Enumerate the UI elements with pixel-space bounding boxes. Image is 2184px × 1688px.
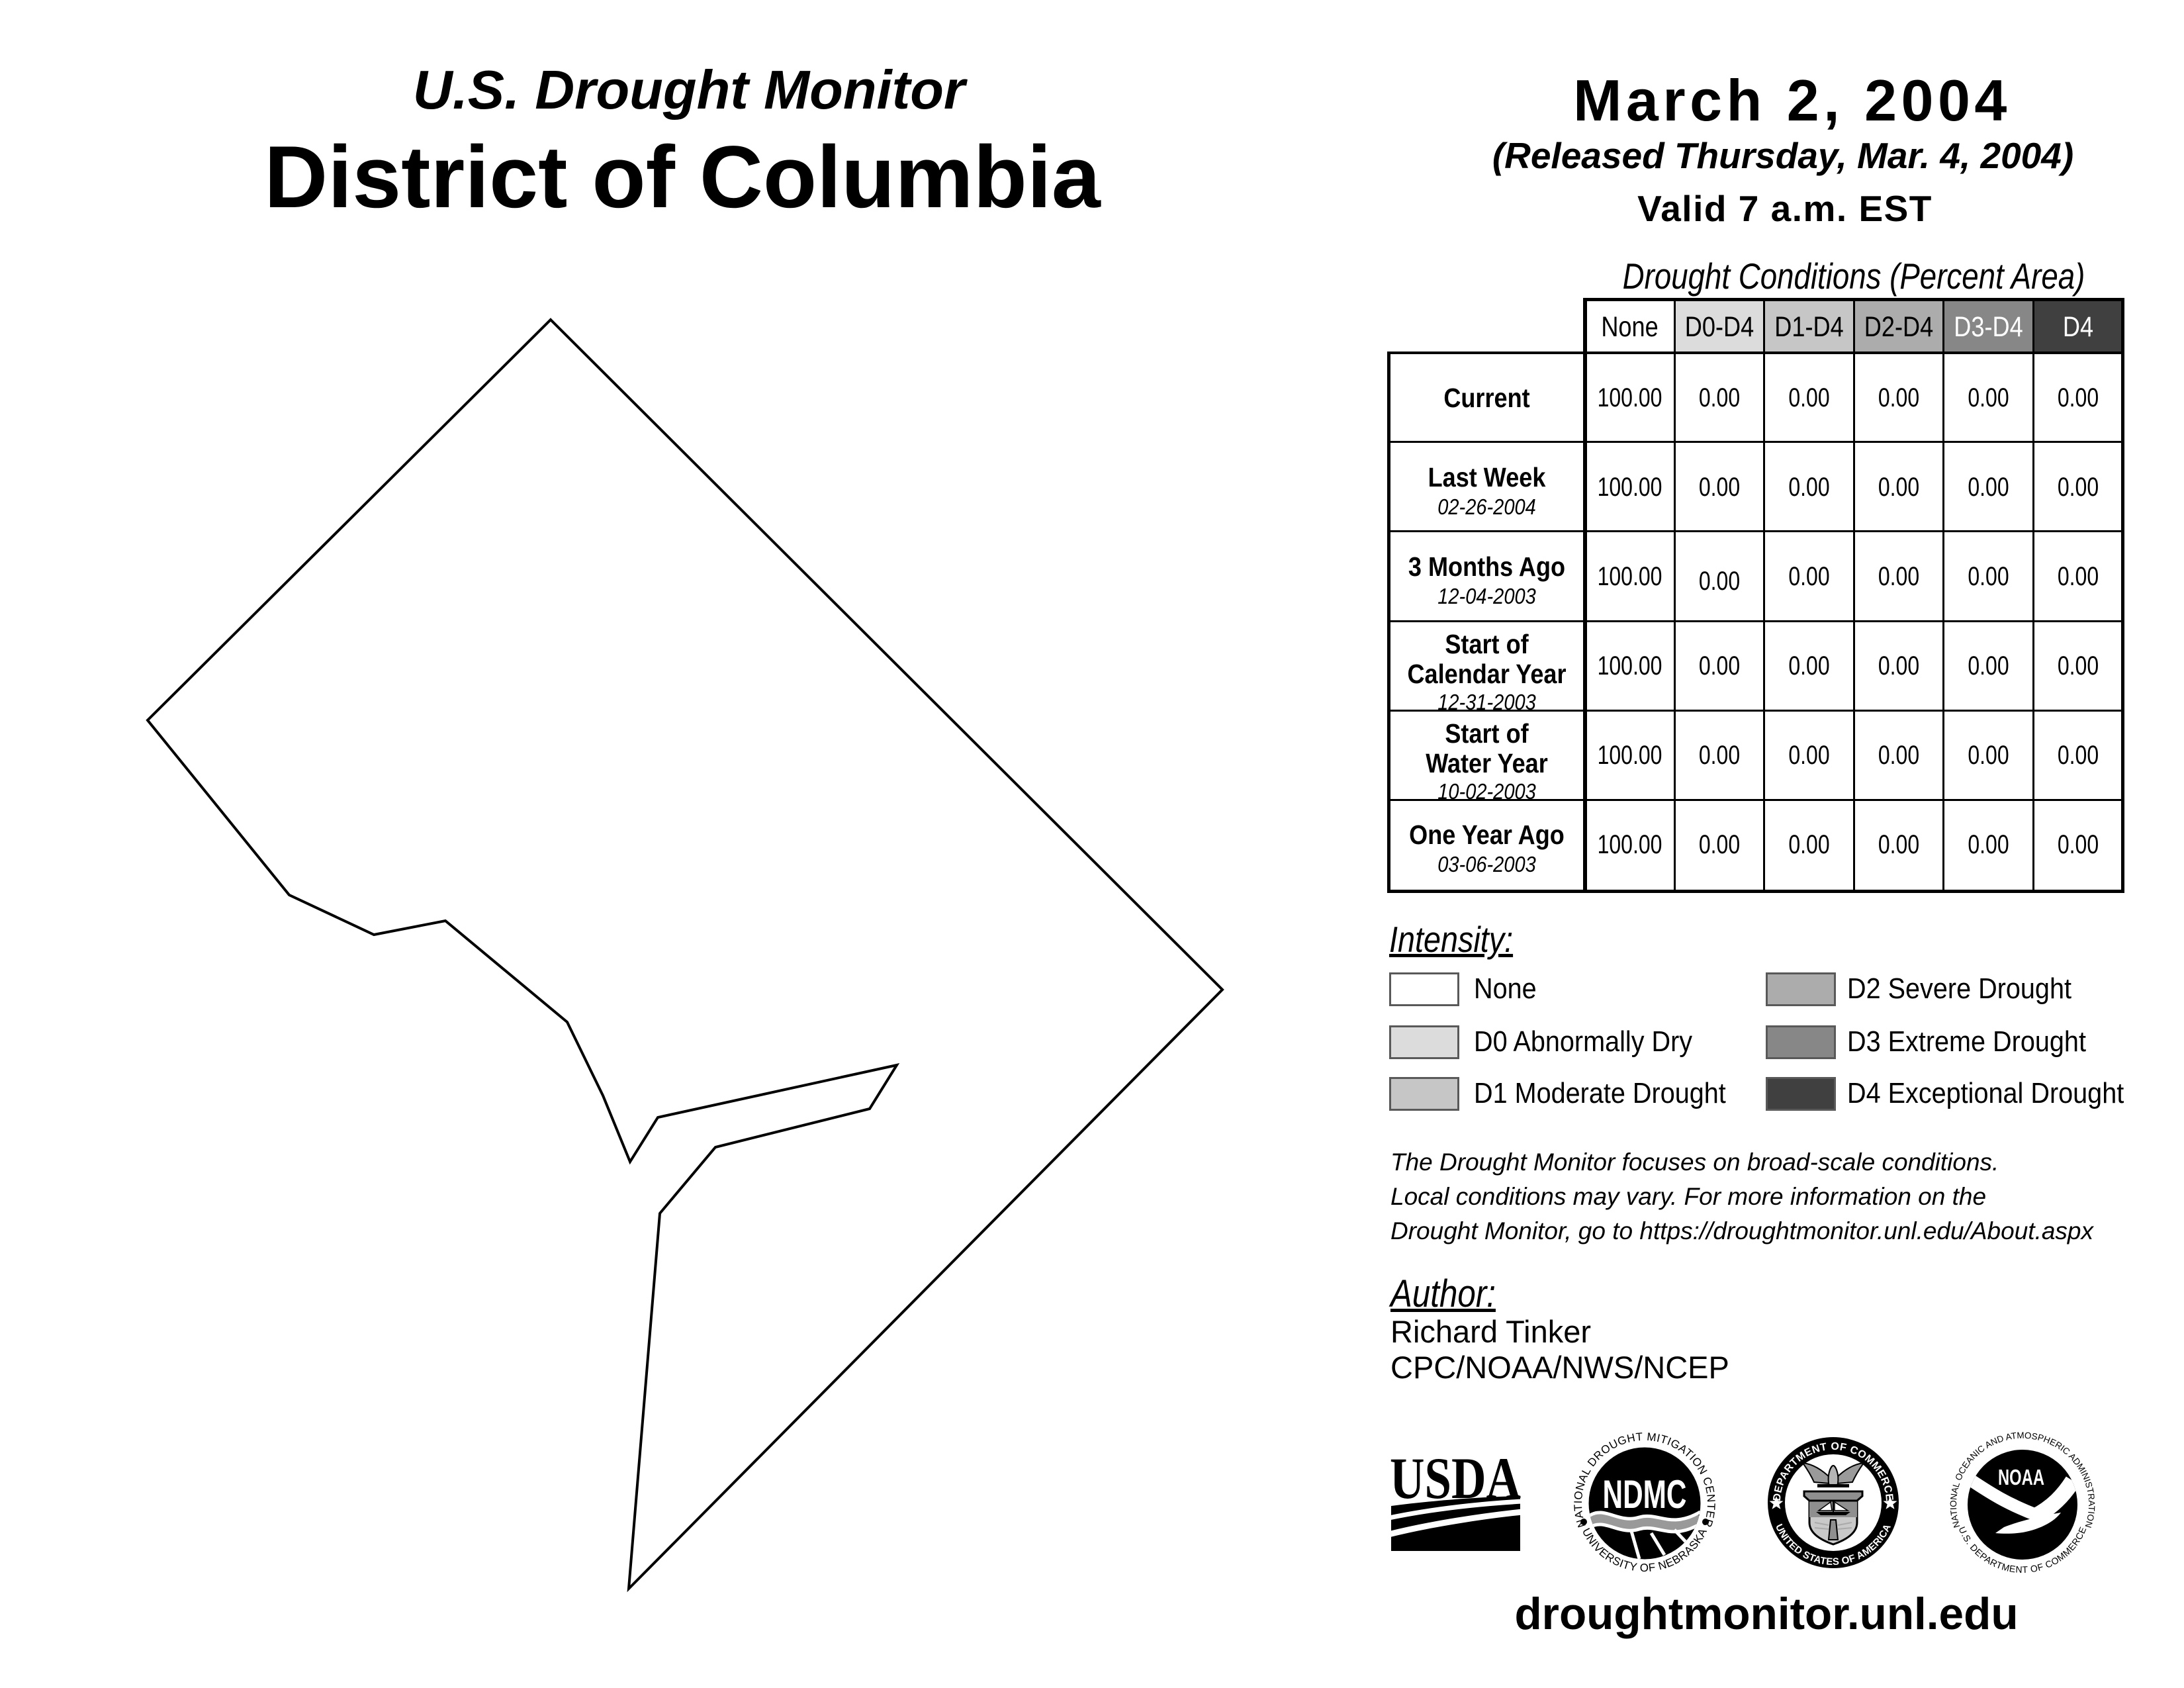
svg-text:NDMC: NDMC (1603, 1472, 1687, 1517)
svg-text:NOAA: NOAA (1998, 1465, 2044, 1489)
